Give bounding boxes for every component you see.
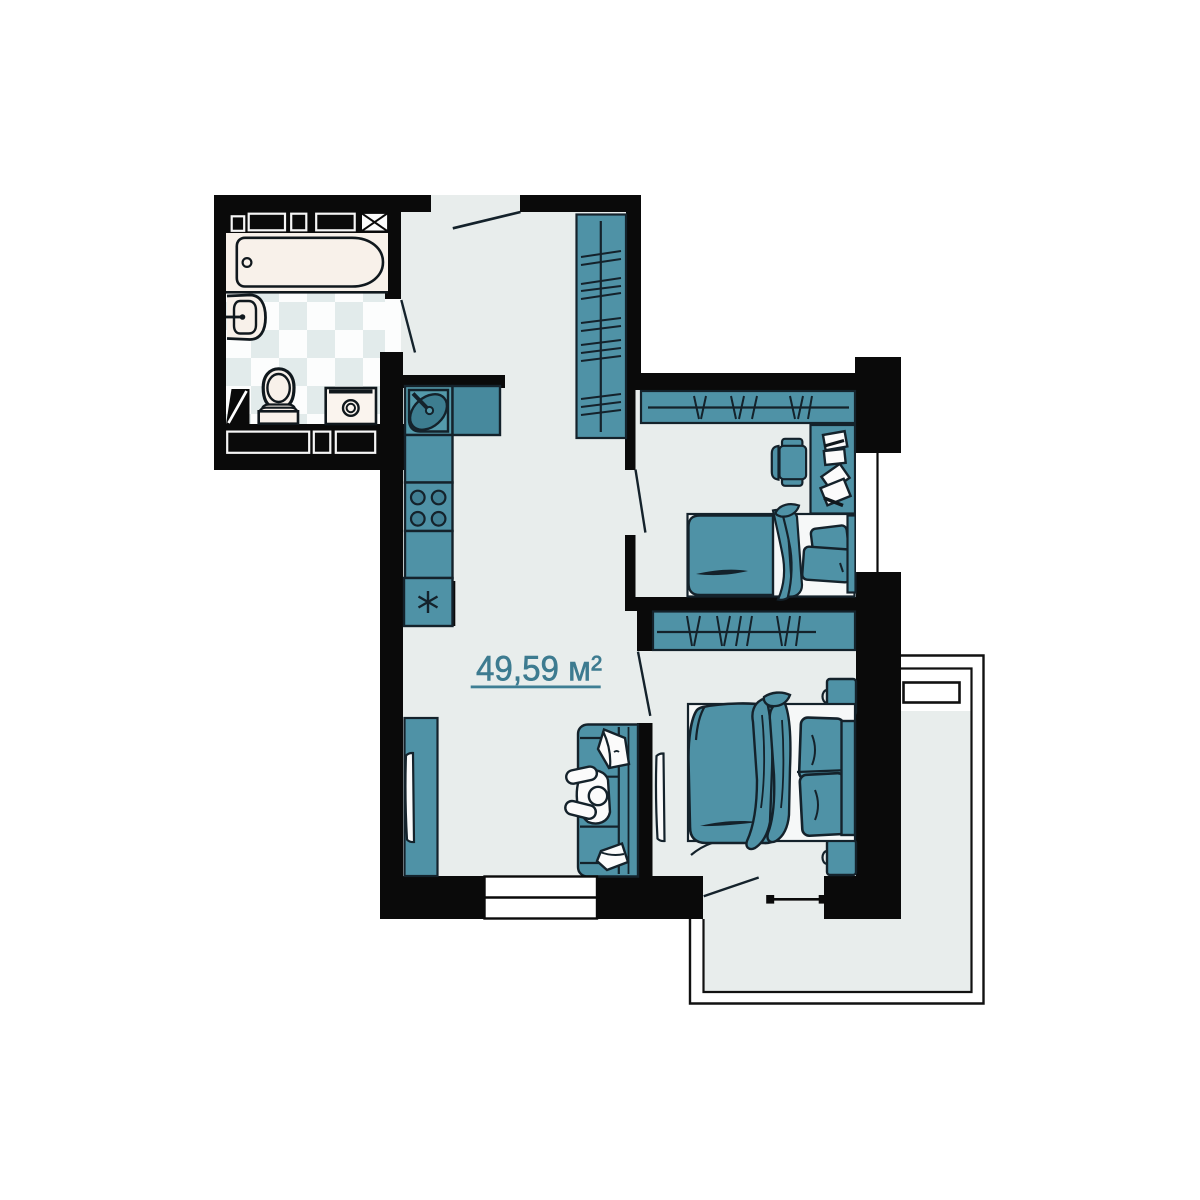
svg-text:49,59 м²: 49,59 м² [476, 649, 602, 689]
